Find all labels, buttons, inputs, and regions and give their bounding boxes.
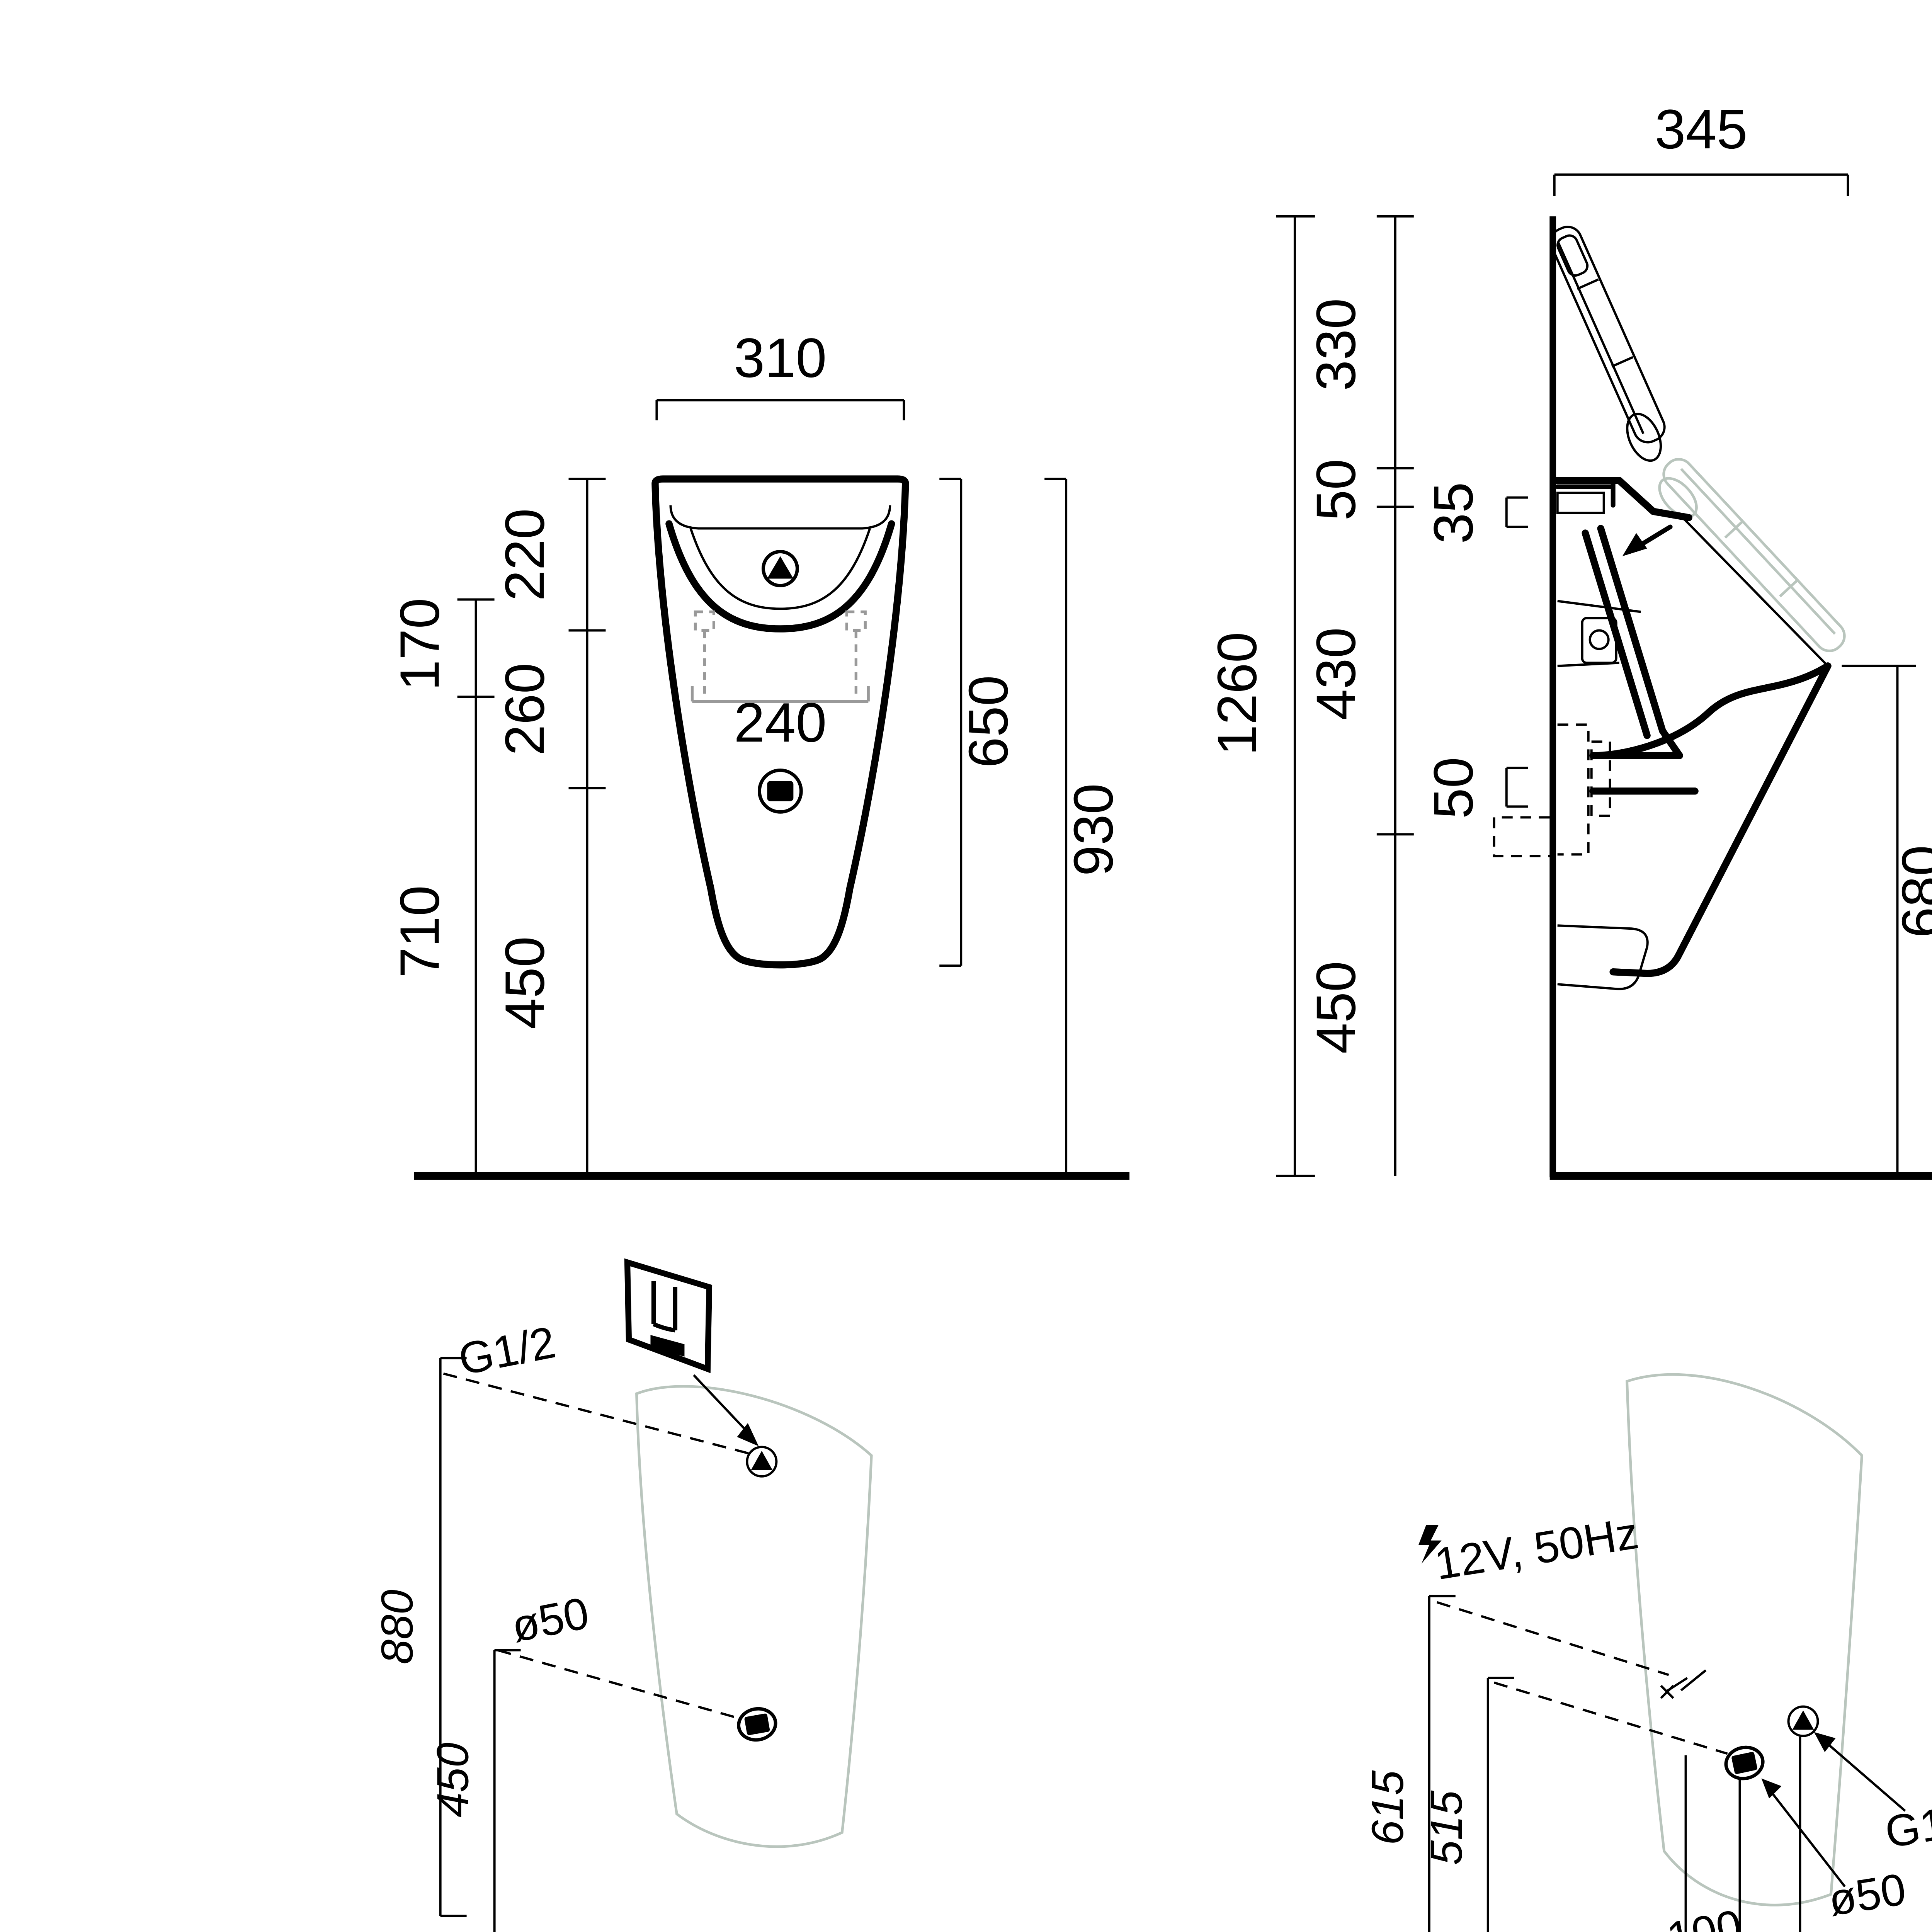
dim-lid-top: 330 (1305, 298, 1367, 391)
drain-dia-label: ø50 (507, 1588, 593, 1652)
drain-dashed-line (1494, 1683, 1728, 1754)
dim-inlet-height: 880 (372, 1590, 422, 1664)
inlet-arrow-icon (1814, 1732, 1905, 1811)
dim-rim-bracket (1507, 498, 1528, 527)
install-front-view: G1/2 880 ø50 450 +PS002 (or PS006 + bate… (345, 1262, 1052, 1932)
wall-dashed-box (1494, 817, 1550, 856)
dim-total-h: 1260 (1206, 632, 1268, 755)
dim-total-h: 930 (1062, 783, 1124, 876)
dim-inlet-height-line (440, 1358, 467, 1916)
dim-inlet-offset-bracket (1507, 768, 1528, 806)
holes-dashed-rect (704, 630, 856, 695)
dim-holes-to-drain: 260 (494, 663, 556, 755)
drain-icon (759, 770, 801, 812)
drain-arrow-icon (1762, 1779, 1845, 1887)
ghost-body (636, 1386, 871, 1847)
rim-inner-line (670, 505, 890, 529)
dim-drain-height: 515 (1421, 1790, 1471, 1865)
urinal-technical-drawing: 240 310 220 260 450 170 710 650 930 (0, 0, 1932, 1932)
bowl-top-edge (1684, 519, 1828, 666)
flush-pipe-hole (1590, 630, 1609, 649)
power-dashed-line (1437, 1602, 1669, 1675)
dim-width: 310 (734, 327, 827, 389)
drain-dashed-line (498, 1650, 739, 1718)
lid-ghost (1653, 454, 1850, 657)
dim-inlet-to-holes: 170 (389, 598, 451, 690)
dim-depth-bracket (1554, 175, 1848, 196)
body-section (1494, 481, 1828, 989)
mount-bolt (1558, 493, 1604, 513)
dim-170-710-line (457, 600, 495, 1176)
dim-width-bracket (656, 400, 904, 420)
dim-drain-to-floor: 450 (494, 936, 556, 1029)
inlet-triangle-icon (1789, 1707, 1818, 1736)
flush-plate-arrow-icon (694, 1375, 759, 1446)
dim-power-height: 615 (1362, 1770, 1413, 1845)
dim-depth: 345 (1655, 98, 1748, 160)
dim-power-height-line (1429, 1596, 1456, 1932)
ghost-body (1627, 1374, 1862, 1905)
dim-rim: 35 (1422, 482, 1485, 544)
dim-drain-height-line (495, 1650, 521, 1932)
fixing-hole-left (695, 612, 714, 630)
dim-spacing-a: 100 (1663, 1900, 1746, 1932)
install-side-view: 12V, 50Hz 615 515 G1/2 ø50 (1362, 1374, 1932, 1932)
supply-dashed-box (1558, 724, 1588, 854)
inlet-thread-label: G1/2 (1882, 1793, 1932, 1857)
dim-below: 450 (1305, 961, 1367, 1054)
dim-holes-spacing: 240 (734, 691, 827, 753)
flush-plate-icon (627, 1262, 709, 1369)
lid-open (1546, 223, 1669, 447)
dim-bowl-h: 220 (494, 508, 556, 601)
fixing-hole-right (847, 612, 865, 630)
dim-inner-column (1377, 216, 1414, 1176)
inlet-thread-label: G1/2 (454, 1317, 560, 1385)
inlet-triangle-icon (763, 552, 797, 586)
dim-drain-height-line (1488, 1678, 1514, 1932)
dim-drain-height: 450 (428, 1743, 478, 1817)
power-label: 12V, 50Hz (1431, 1507, 1642, 1589)
dim-body-drop: 430 (1305, 627, 1367, 720)
dim-front-tip-h: 680 (1890, 845, 1932, 938)
front-view: 240 310 220 260 450 170 710 650 930 (389, 327, 1129, 1176)
inlet-triangle-icon (747, 1447, 776, 1476)
drain-dia-label: ø50 (1825, 1864, 1909, 1925)
dim-left-column (569, 479, 606, 1176)
drain-icon (1723, 1744, 1765, 1782)
dim-inlet-offset: 50 (1422, 757, 1485, 819)
drain-icon (736, 1706, 778, 1743)
dim-body-h: 650 (957, 675, 1019, 768)
dim-upper-to-floor: 710 (389, 885, 451, 978)
flow-arrow-icon (1622, 533, 1647, 556)
side-view: 345 1260 330 50 430 450 35 50 680 (1206, 98, 1932, 1177)
dim-hinge-gap: 50 (1305, 459, 1367, 521)
